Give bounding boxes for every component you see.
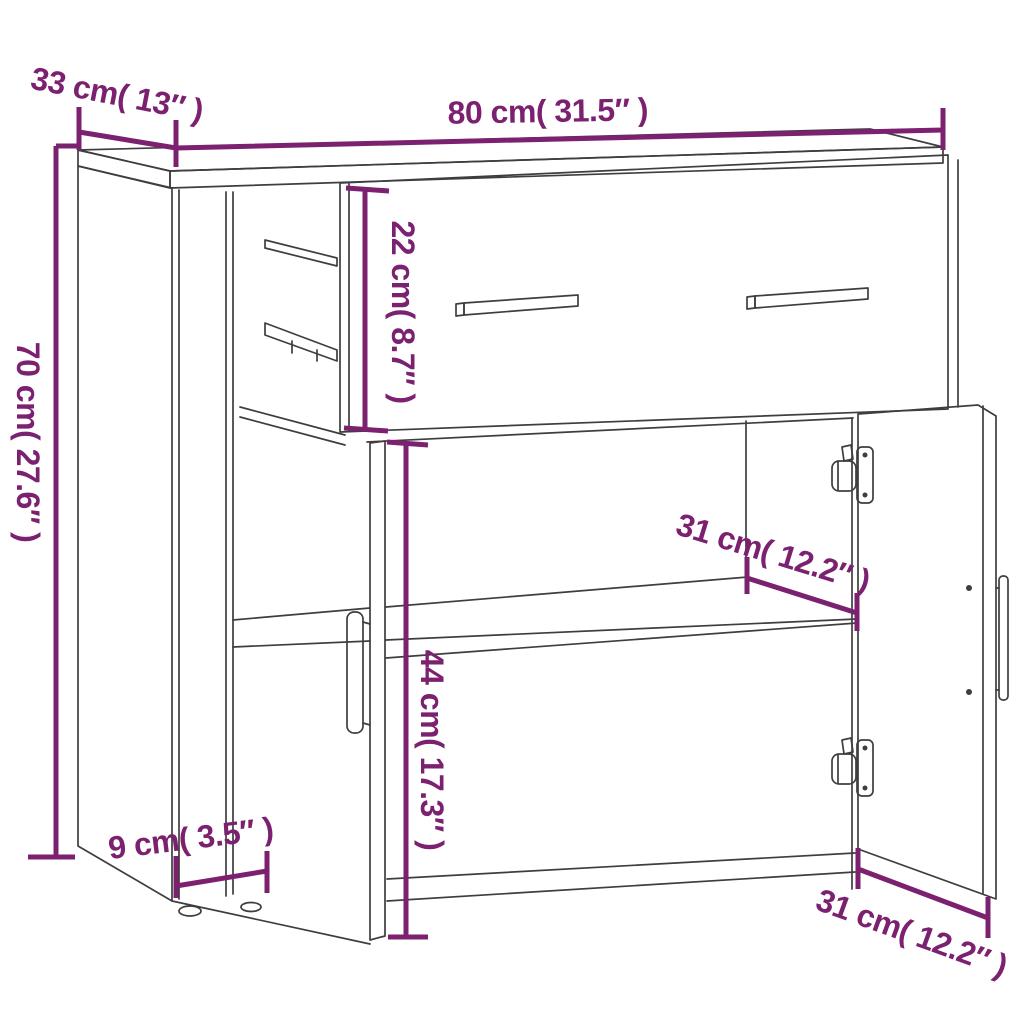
height-dimension-label: 70 cm( 27.6″ ) — [10, 342, 46, 542]
left-side-panel — [78, 166, 233, 901]
product-dimension-diagram: 33 cm( 13″ ) 80 cm( 31.5″ ) 70 cm( 27.6″… — [0, 0, 1024, 1024]
drawer-height-dimension-label: 22 cm( 8.7″ ) — [385, 220, 421, 403]
drawer-handle-left — [456, 295, 578, 316]
dimension-labels: 33 cm( 13″ ) 80 cm( 31.5″ ) 70 cm( 27.6″… — [10, 60, 1012, 984]
left-door — [370, 441, 385, 940]
drawer-handle-right — [747, 288, 868, 309]
base-front-edge — [172, 901, 370, 944]
plinth-dimension-line — [176, 851, 267, 898]
left-door-handle — [347, 612, 370, 733]
door-screw-hole-top — [966, 585, 972, 591]
drawer-compartment-rails — [240, 240, 345, 445]
plinth-dimension-label: 9 cm( 3.5″ ) — [106, 810, 275, 866]
door-screw-hole-bottom — [966, 689, 972, 695]
right-door — [858, 405, 996, 899]
drawer-front — [340, 155, 958, 432]
depth-dimension-label: 33 cm( 13″ ) — [28, 60, 206, 129]
right-door-handle — [996, 576, 1008, 700]
drawer-height-dimension-line — [344, 188, 389, 431]
compartment-height-dimension-label: 44 cm( 17.3″ ) — [414, 650, 450, 850]
width-dimension-label: 80 cm( 31.5″ ) — [447, 91, 648, 130]
diagram-canvas: 33 cm( 13″ ) 80 cm( 31.5″ ) 70 cm( 27.6″… — [0, 0, 1024, 1024]
door-width-dimension-label: 31 cm( 12.2″ ) — [811, 881, 1012, 983]
bottom-panel — [387, 853, 855, 901]
